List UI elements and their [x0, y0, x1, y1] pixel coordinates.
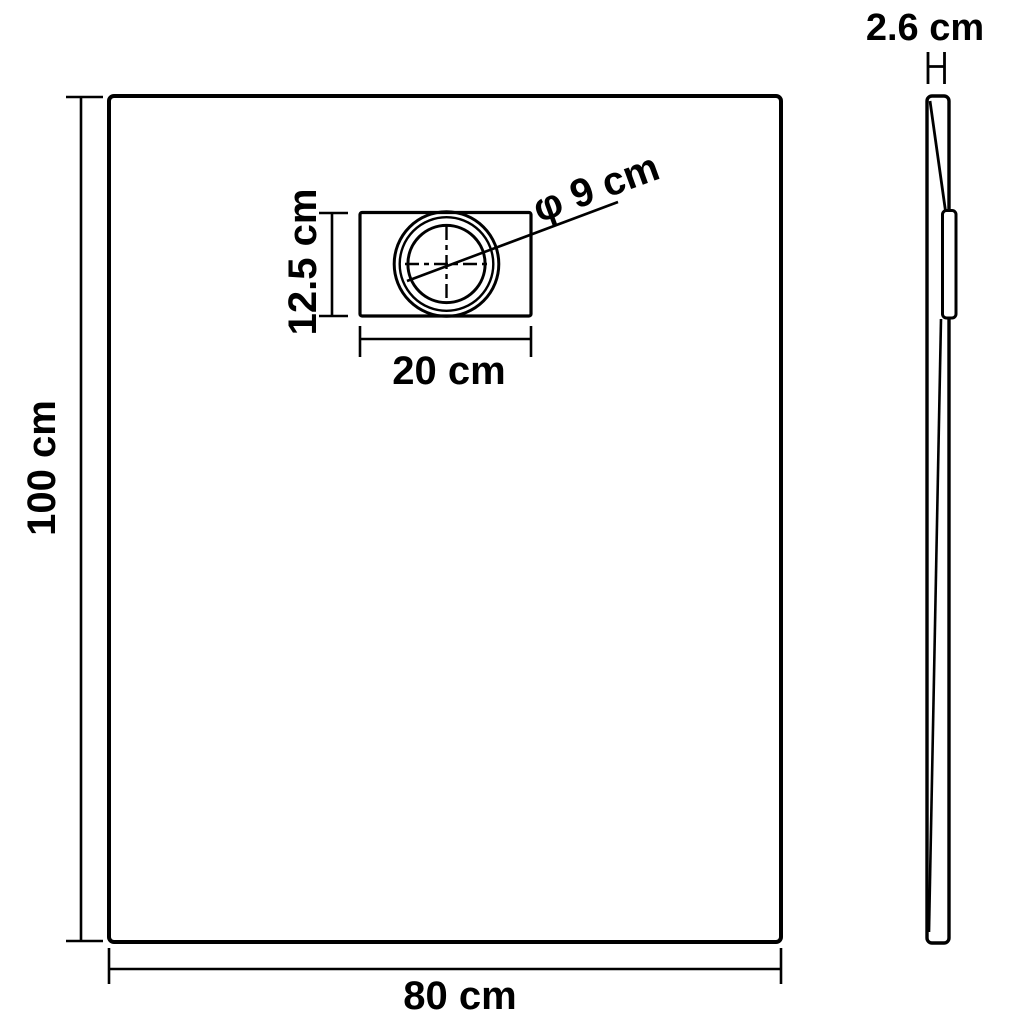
side-drain-housing — [943, 211, 957, 319]
thickness-label: 2.6 cm — [866, 9, 984, 47]
drain-box-width-label: 20 cm — [392, 351, 505, 391]
front-width-label: 80 cm — [403, 976, 516, 1016]
dimension-diagram: 2.6 cm 100 cm 80 cm 12.5 cm 20 cm φ 9 cm — [0, 0, 1024, 1024]
diagram-linework — [0, 0, 1024, 1024]
front-height-label: 100 cm — [22, 400, 62, 536]
drain-box-height-label: 12.5 cm — [283, 189, 323, 336]
